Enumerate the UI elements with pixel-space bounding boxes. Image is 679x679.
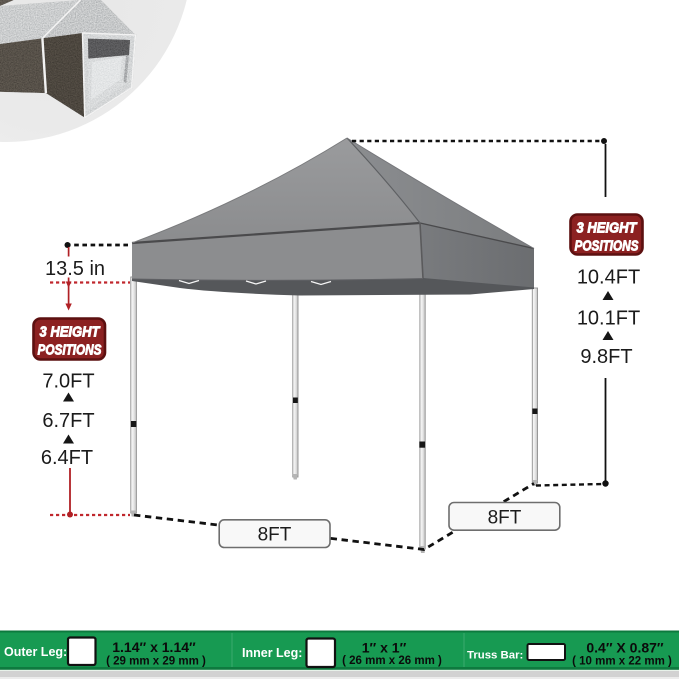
svg-text:1″ x 1″: 1″ x 1″ (362, 640, 407, 656)
svg-text:8FT: 8FT (258, 525, 292, 546)
svg-text:Inner Leg:: Inner Leg: (242, 646, 302, 660)
svg-text:( 10 mm x 22 mm ): ( 10 mm x 22 mm ) (572, 656, 672, 668)
svg-text:POSITIONS: POSITIONS (575, 238, 639, 255)
svg-text:1.14″ x 1.14″: 1.14″ x 1.14″ (112, 639, 196, 655)
svg-text:Outer Leg:: Outer Leg: (4, 645, 67, 659)
svg-text:( 26 mm x 26 mm ): ( 26 mm x 26 mm ) (342, 655, 442, 667)
svg-text:POSITIONS: POSITIONS (38, 342, 102, 359)
svg-text:10.4FT: 10.4FT (577, 267, 640, 289)
svg-text:10.1FT: 10.1FT (577, 308, 640, 330)
svg-text:6.7FT: 6.7FT (42, 410, 94, 432)
svg-text:9.8FT: 9.8FT (580, 346, 632, 368)
svg-text:Truss Bar:: Truss Bar: (467, 650, 523, 662)
svg-text:3 HEIGHT: 3 HEIGHT (577, 220, 639, 237)
svg-text:7.0FT: 7.0FT (42, 371, 94, 393)
svg-text:8FT: 8FT (488, 508, 522, 529)
svg-text:0.4″ X 0.87″: 0.4″ X 0.87″ (586, 640, 664, 656)
svg-text:6.4FT: 6.4FT (41, 447, 93, 469)
svg-text:( 29 mm x 29 mm ): ( 29 mm x 29 mm ) (106, 656, 206, 668)
svg-text:3 HEIGHT: 3 HEIGHT (40, 324, 102, 341)
svg-text:13.5 in: 13.5 in (45, 258, 105, 280)
